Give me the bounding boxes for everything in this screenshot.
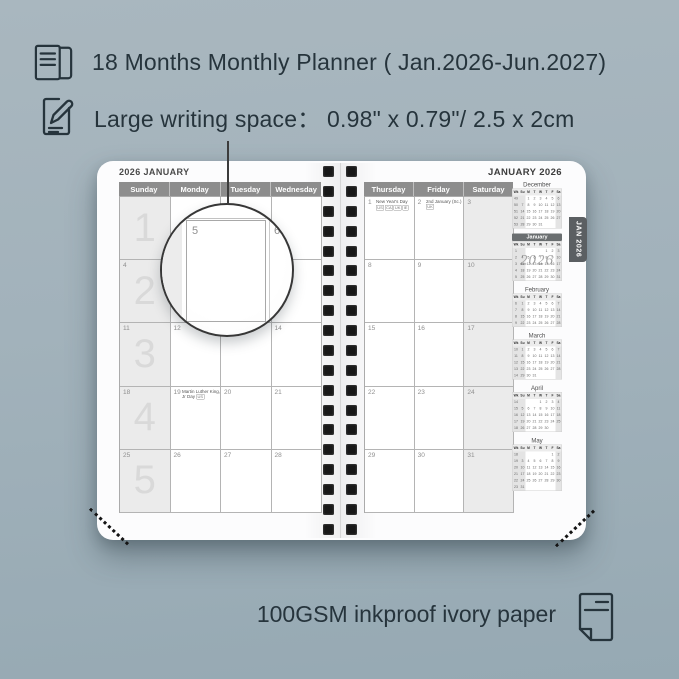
binding-hole <box>346 206 357 217</box>
mini-calendar-grid: WkSuMTWTFSa49123456507891011121351141516… <box>512 189 562 229</box>
calendar-cell: 28 <box>272 450 323 513</box>
cell-date: 2 <box>418 199 422 206</box>
corner-stitch-right <box>555 510 595 548</box>
book-icon <box>33 43 75 83</box>
cell-date: 17 <box>467 325 474 332</box>
calendar-cell: 10 <box>464 260 514 323</box>
holiday-region-tags: UK <box>426 204 435 209</box>
binding-hole <box>346 305 357 316</box>
mini-week-number: 14 <box>513 373 520 380</box>
calendar-cell: 16 <box>415 323 465 386</box>
binding-hole-row <box>323 345 357 356</box>
magnifier-circle: 5 6 <box>160 203 294 337</box>
binding-hole <box>346 385 357 396</box>
binding-hole <box>323 285 334 296</box>
mini-calendar-title: May <box>512 437 562 445</box>
binding-hole <box>323 246 334 257</box>
magnifier-leader-line <box>227 141 229 205</box>
binding-hole <box>323 365 334 376</box>
binding-hole-row <box>323 365 357 376</box>
binding-hole-row <box>323 226 357 237</box>
region-tag: US <box>196 394 204 400</box>
mini-calendar-grid: WkSuMTWTFSa10123456711891011121314121516… <box>512 340 562 380</box>
calendar-cell: 23 <box>415 387 465 450</box>
spiral-binding <box>323 166 357 535</box>
left-weekday-header: SundayMondayTuesdayWednesday <box>119 182 321 196</box>
binding-hole <box>346 226 357 237</box>
mini-calendar: FebruaryWkSuMTWTFSa612345677891011121314… <box>512 286 562 327</box>
mini-calendar: MayWkSuMTWTFSa18121934567892010111213141… <box>512 437 562 491</box>
binding-hole <box>346 405 357 416</box>
holiday-region-tags: US <box>196 394 205 399</box>
calendar-cell: 22nd January (Sc.) UK <box>415 197 465 260</box>
region-tag: CA <box>385 205 393 211</box>
week-watermark: 4 <box>120 387 170 449</box>
pencil-note-icon <box>38 92 78 138</box>
weekday-label: Wednesday <box>271 182 321 196</box>
mini-week-number: 9 <box>513 320 520 327</box>
weekday-label: Friday <box>414 182 464 196</box>
weekday-label: Sunday <box>119 182 170 196</box>
cell-date: 19 <box>174 389 181 396</box>
binding-hole-row <box>323 484 357 495</box>
cell-date: 28 <box>275 452 282 459</box>
region-tag: UK <box>426 204 434 210</box>
binding-hole-row <box>323 444 357 455</box>
binding-hole <box>323 444 334 455</box>
region-tag: IE <box>402 205 408 211</box>
calendar-cell: 21 <box>272 387 323 450</box>
mini-date: 31 <box>556 274 562 281</box>
cell-date: 22 <box>368 389 375 396</box>
mini-calendar-title: December <box>512 181 562 189</box>
holiday-name: New Year's Day <box>376 199 408 204</box>
binding-hole-row <box>323 385 357 396</box>
mini-calendar-title: February <box>512 286 562 294</box>
mini-calendar: AprilWkSuMTWTFSa141234155678910111612131… <box>512 385 562 433</box>
binding-hole-row <box>323 464 357 475</box>
binding-hole <box>346 504 357 515</box>
cell-date: 15 <box>368 325 375 332</box>
region-tag: UK <box>394 205 402 211</box>
cell-date: 21 <box>275 389 282 396</box>
binding-hole <box>346 166 357 177</box>
magnified-next-date: 6 <box>274 225 280 237</box>
binding-hole <box>346 186 357 197</box>
magnified-cell-top-border <box>162 218 292 219</box>
calendar-cell: 184 <box>120 387 171 450</box>
mini-date <box>556 425 562 432</box>
cell-date: 14 <box>275 325 282 332</box>
magnified-weekend-shade <box>162 205 182 335</box>
binding-hole <box>323 186 334 197</box>
year-watermark: 2026 <box>512 252 562 269</box>
calendar-cell: 19Martin Luther King, Jr Day US <box>171 387 222 450</box>
binding-hole <box>323 424 334 435</box>
mini-date <box>556 484 562 491</box>
mini-calendar-title: March <box>512 332 562 340</box>
cell-date: 16 <box>418 325 425 332</box>
cell-date: 24 <box>467 389 474 396</box>
right-month-grid: 1New Year's DayUSCAUKIE22nd January (Sc.… <box>364 196 514 513</box>
mini-week-number: 5 <box>513 274 520 281</box>
mini-calendar-grid: WkSuMTWTFSa18121934567892010111213141516… <box>512 445 562 492</box>
magnified-date: 5 <box>192 225 198 237</box>
binding-hole-row <box>323 265 357 276</box>
binding-hole <box>323 405 334 416</box>
binding-hole <box>323 265 334 276</box>
paper-feature-text: 100GSM inkproof ivory paper <box>0 601 556 628</box>
product-image: 18 Months Monthly Planner ( Jan.2026-Jun… <box>0 0 679 679</box>
binding-hole <box>346 484 357 495</box>
mini-date <box>556 222 562 229</box>
holiday-entry: 2nd January (Sc.) UK <box>426 199 467 210</box>
magnified-cell-right-border <box>269 205 270 335</box>
corner-stitch-left <box>89 508 129 546</box>
binding-hole <box>346 265 357 276</box>
calendar-cell: 255 <box>120 450 171 513</box>
holiday-entry: Martin Luther King, Jr Day US <box>182 389 224 400</box>
binding-hole-row <box>323 305 357 316</box>
weekday-label: Monday <box>170 182 221 196</box>
cell-date: 23 <box>418 389 425 396</box>
binding-hole-row <box>323 424 357 435</box>
binding-hole-row <box>323 246 357 257</box>
cell-date: 9 <box>418 262 422 269</box>
binding-hole <box>346 285 357 296</box>
calendar-cell: 31 <box>464 450 514 513</box>
holiday-region-tags: USCAUKIE <box>376 205 417 211</box>
weekday-label: Thursday <box>364 182 414 196</box>
binding-hole <box>323 166 334 177</box>
mini-date: 28 <box>556 320 562 327</box>
binding-hole <box>323 226 334 237</box>
calendar-cell: 1New Year's DayUSCAUKIE <box>365 197 415 260</box>
mini-calendar: MarchWkSuMTWTFSa101234567118910111213141… <box>512 332 562 380</box>
calendar-cell: 30 <box>415 450 465 513</box>
cell-date: 3 <box>467 199 471 206</box>
binding-hole <box>323 305 334 316</box>
binding-hole <box>323 464 334 475</box>
binding-hole <box>346 464 357 475</box>
mini-week-number: 23 <box>513 484 520 491</box>
cell-date: 30 <box>418 452 425 459</box>
weekday-label: Saturday <box>464 182 513 196</box>
calendar-cell: 17 <box>464 323 514 386</box>
calendar-cell: 14 <box>272 323 323 386</box>
binding-hole <box>323 325 334 336</box>
mini-calendar-title: April <box>512 385 562 393</box>
binding-hole <box>323 524 334 535</box>
binding-hole-row <box>323 186 357 197</box>
binding-hole <box>346 444 357 455</box>
writing-space-label: Large writing space： <box>94 106 320 132</box>
region-tag: US <box>376 205 384 211</box>
binding-hole <box>346 246 357 257</box>
binding-hole <box>346 524 357 535</box>
calendar-cell: 8 <box>365 260 415 323</box>
right-page-title: JANUARY 2026 <box>488 167 562 178</box>
left-page-title: 2026 JANUARY <box>119 167 190 177</box>
cell-date: 10 <box>467 262 474 269</box>
binding-hole-row <box>323 325 357 336</box>
calendar-cell: 29 <box>365 450 415 513</box>
binding-hole <box>323 345 334 356</box>
mini-week-number: 53 <box>513 222 520 229</box>
binding-hole-row <box>323 524 357 535</box>
week-watermark: 5 <box>120 450 170 512</box>
calendar-cell: 9 <box>415 260 465 323</box>
calendar-cell: 24 <box>464 387 514 450</box>
binding-hole-row <box>323 285 357 296</box>
cell-date: 29 <box>368 452 375 459</box>
mini-date <box>556 373 562 380</box>
binding-hole <box>346 345 357 356</box>
calendar-cell: 27 <box>221 450 272 513</box>
cell-date: 8 <box>368 262 372 269</box>
cell-date: 20 <box>224 389 231 396</box>
calendar-cell: 15 <box>365 323 415 386</box>
calendar-cell: 20 <box>221 387 272 450</box>
mini-calendar-grid: WkSuMTWTFSa61234567789101112131481516171… <box>512 294 562 328</box>
mini-calendar-title: January <box>512 234 562 242</box>
binding-hole <box>346 424 357 435</box>
mini-calendar-grid: WkSuMTWTFSa14123415567891011161213141516… <box>512 392 562 432</box>
calendar-cell: 22 <box>365 387 415 450</box>
calendar-cell: 3 <box>464 197 514 260</box>
paper-icon <box>576 590 616 644</box>
binding-hole-row <box>323 206 357 217</box>
right-weekday-header: ThursdayFridaySaturday <box>364 182 513 196</box>
mini-calendar: DecemberWkSuMTWTFSa491234565078910111213… <box>512 181 562 229</box>
writing-space-value: 0.98" x 0.79"/ 2.5 x 2cm <box>327 106 574 132</box>
calendar-cell: 26 <box>171 450 222 513</box>
feature-months-range: 18 Months Monthly Planner ( Jan.2026-Jun… <box>92 49 606 76</box>
mini-calendar: JanuaryWkSuMTWTFSa1123245678910311121314… <box>512 234 562 282</box>
binding-hole-row <box>323 504 357 515</box>
feature-writing-space: Large writing space： 0.98" x 0.79"/ 2.5 … <box>94 100 574 134</box>
binding-hole-row <box>323 405 357 416</box>
mini-week-number: 18 <box>513 425 520 432</box>
cell-date: 26 <box>174 452 181 459</box>
cell-date: 1 <box>368 199 372 206</box>
cell-date: 27 <box>224 452 231 459</box>
binding-hole <box>323 385 334 396</box>
binding-hole <box>346 325 357 336</box>
binding-hole <box>323 206 334 217</box>
holiday-entry: New Year's DayUSCAUKIE <box>376 199 417 210</box>
binding-hole <box>346 365 357 376</box>
cell-date: 31 <box>467 452 474 459</box>
binding-hole-row <box>323 166 357 177</box>
month-index-tab: JAN 2026 <box>569 217 587 262</box>
binding-hole <box>323 504 334 515</box>
binding-hole <box>323 484 334 495</box>
mini-calendars: DecemberWkSuMTWTFSa491234565078910111213… <box>512 181 562 496</box>
